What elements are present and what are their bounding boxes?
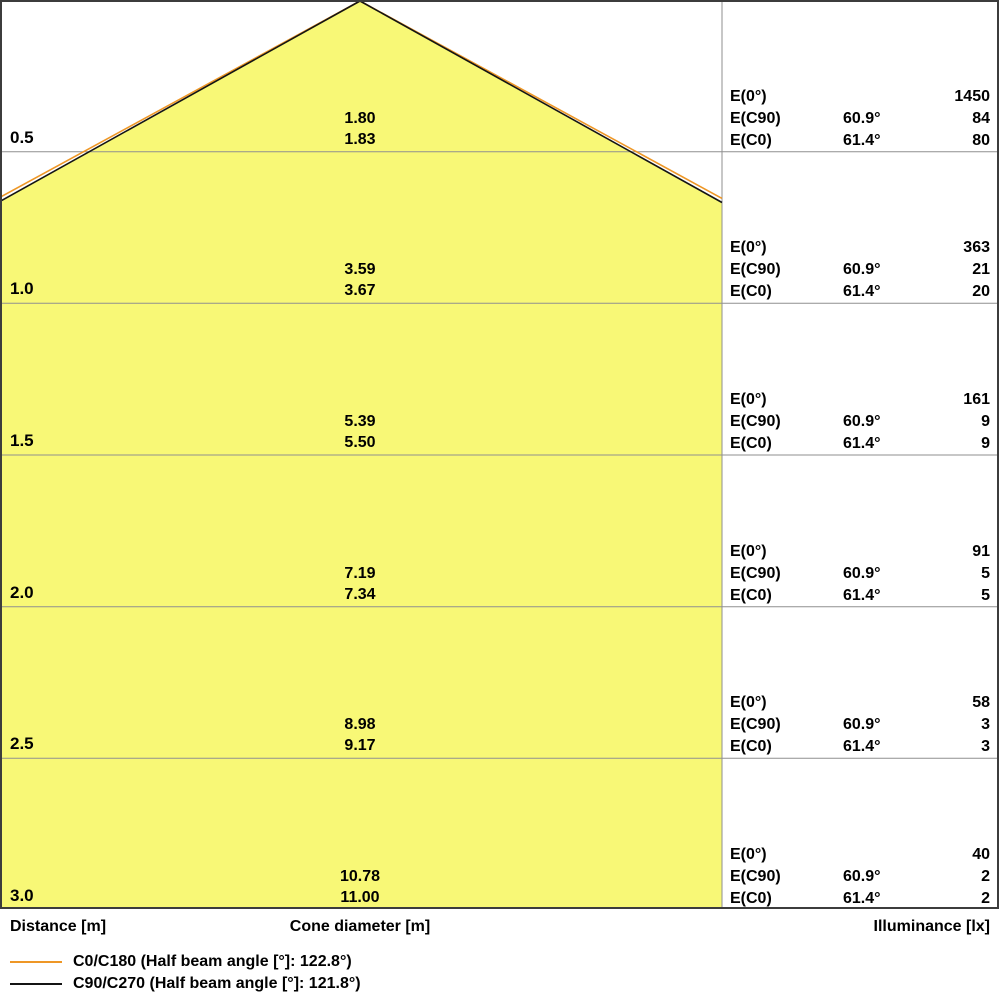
ec90-label: E(C90) bbox=[730, 411, 843, 433]
ec0-angle: 61.4° bbox=[843, 888, 927, 910]
e0-value: 91 bbox=[927, 541, 990, 563]
e0-row: E(0°)91 bbox=[730, 541, 990, 563]
cone-diameter-label: 5.395.50 bbox=[260, 411, 460, 453]
ec90-angle: 60.9° bbox=[843, 108, 927, 130]
ec0-row: E(C0)61.4°9 bbox=[730, 433, 990, 455]
e0-angle bbox=[843, 692, 927, 714]
cone-diameter-c90-value: 3.59 bbox=[260, 259, 460, 280]
e0-label: E(0°) bbox=[730, 692, 843, 714]
cone-diameter-c0-value: 3.67 bbox=[260, 280, 460, 301]
cone-diameter-c0-value: 5.50 bbox=[260, 432, 460, 453]
e0-row: E(0°)363 bbox=[730, 237, 990, 259]
ec90-value: 3 bbox=[927, 714, 990, 736]
ec90-label: E(C90) bbox=[730, 108, 843, 130]
illuminance-block: E(0°)91E(C90)60.9°5E(C0)61.4°5 bbox=[730, 541, 990, 607]
cone-diameter-label: 10.7811.00 bbox=[260, 866, 460, 908]
ec0-value: 20 bbox=[927, 281, 990, 303]
light-cone-diagram: 0.51.801.83E(0°)1450E(C90)60.9°84E(C0)61… bbox=[0, 0, 1000, 1000]
ec90-label: E(C90) bbox=[730, 259, 843, 281]
cone-diameter-label: 3.593.67 bbox=[260, 259, 460, 301]
distance-label: 0.5 bbox=[10, 127, 34, 148]
e0-value: 363 bbox=[927, 237, 990, 259]
cone-diameter-c0-value: 9.17 bbox=[260, 735, 460, 756]
cone-diameter-c90-value: 7.19 bbox=[260, 563, 460, 584]
ec0-row: E(C0)61.4°20 bbox=[730, 281, 990, 303]
ec90-row: E(C90)60.9°21 bbox=[730, 259, 990, 281]
e0-row: E(0°)58 bbox=[730, 692, 990, 714]
cone-diameter-label: 7.197.34 bbox=[260, 563, 460, 605]
ec90-value: 5 bbox=[927, 563, 990, 585]
e0-label: E(0°) bbox=[730, 237, 843, 259]
illuminance-block: E(0°)1450E(C90)60.9°84E(C0)61.4°80 bbox=[730, 86, 990, 152]
ec0-angle: 61.4° bbox=[843, 130, 927, 152]
distance-label: 2.0 bbox=[10, 582, 34, 603]
ec0-row: E(C0)61.4°5 bbox=[730, 585, 990, 607]
ec90-row: E(C90)60.9°5 bbox=[730, 563, 990, 585]
cone-diameter-c0-value: 7.34 bbox=[260, 584, 460, 605]
illuminance-block: E(0°)161E(C90)60.9°9E(C0)61.4°9 bbox=[730, 389, 990, 455]
c90-c270-line-swatch-icon bbox=[10, 983, 62, 985]
e0-angle bbox=[843, 86, 927, 108]
ec90-value: 2 bbox=[927, 866, 990, 888]
distance-label: 2.5 bbox=[10, 733, 34, 754]
ec0-label: E(C0) bbox=[730, 736, 843, 758]
cone-diameter-c90-value: 1.80 bbox=[260, 108, 460, 129]
e0-label: E(0°) bbox=[730, 541, 843, 563]
ec90-angle: 60.9° bbox=[843, 866, 927, 888]
ec0-angle: 61.4° bbox=[843, 433, 927, 455]
e0-angle bbox=[843, 237, 927, 259]
ec0-label: E(C0) bbox=[730, 888, 843, 910]
legend-item-c0-c180: C0/C180 (Half beam angle [°]: 122.8°) bbox=[10, 951, 361, 973]
ec90-angle: 60.9° bbox=[843, 563, 927, 585]
e0-value: 161 bbox=[927, 389, 990, 411]
ec90-label: E(C90) bbox=[730, 866, 843, 888]
ec90-row: E(C90)60.9°84 bbox=[730, 108, 990, 130]
c0-c180-line-swatch-icon bbox=[10, 961, 62, 963]
ec90-label: E(C90) bbox=[730, 714, 843, 736]
ec0-label: E(C0) bbox=[730, 433, 843, 455]
ec90-value: 21 bbox=[927, 259, 990, 281]
legend: C0/C180 (Half beam angle [°]: 122.8°) C9… bbox=[10, 951, 361, 995]
cone-diameter-label: 8.989.17 bbox=[260, 714, 460, 756]
cone-diameter-c0-value: 11.00 bbox=[260, 887, 460, 908]
cone-diameter-c90-value: 8.98 bbox=[260, 714, 460, 735]
e0-label: E(0°) bbox=[730, 86, 843, 108]
e0-label: E(0°) bbox=[730, 844, 843, 866]
distance-label: 3.0 bbox=[10, 885, 34, 906]
ec0-value: 5 bbox=[927, 585, 990, 607]
ec90-row: E(C90)60.9°2 bbox=[730, 866, 990, 888]
e0-row: E(0°)40 bbox=[730, 844, 990, 866]
e0-row: E(0°)161 bbox=[730, 389, 990, 411]
ec90-angle: 60.9° bbox=[843, 411, 927, 433]
ec0-angle: 61.4° bbox=[843, 585, 927, 607]
legend-label-c0-c180: C0/C180 (Half beam angle [°]: 122.8°) bbox=[73, 953, 352, 971]
illuminance-block: E(0°)363E(C90)60.9°21E(C0)61.4°20 bbox=[730, 237, 990, 303]
ec90-angle: 60.9° bbox=[843, 714, 927, 736]
ec0-value: 3 bbox=[927, 736, 990, 758]
distance-axis-label: Distance [m] bbox=[10, 916, 106, 938]
illuminance-block: E(0°)40E(C90)60.9°2E(C0)61.4°2 bbox=[730, 844, 990, 910]
distance-label: 1.0 bbox=[10, 278, 34, 299]
ec0-angle: 61.4° bbox=[843, 281, 927, 303]
cone-diameter-c90-value: 10.78 bbox=[260, 866, 460, 887]
ec90-value: 9 bbox=[927, 411, 990, 433]
e0-value: 40 bbox=[927, 844, 990, 866]
ec90-angle: 60.9° bbox=[843, 259, 927, 281]
cone-diameter-axis-label: Cone diameter [m] bbox=[210, 916, 510, 938]
cone-diameter-c0-value: 1.83 bbox=[260, 129, 460, 150]
ec90-row: E(C90)60.9°3 bbox=[730, 714, 990, 736]
ec0-row: E(C0)61.4°2 bbox=[730, 888, 990, 910]
e0-angle bbox=[843, 541, 927, 563]
legend-item-c90-c270: C90/C270 (Half beam angle [°]: 121.8°) bbox=[10, 973, 361, 995]
e0-label: E(0°) bbox=[730, 389, 843, 411]
ec0-row: E(C0)61.4°80 bbox=[730, 130, 990, 152]
ec90-label: E(C90) bbox=[730, 563, 843, 585]
ec0-value: 9 bbox=[927, 433, 990, 455]
ec90-value: 84 bbox=[927, 108, 990, 130]
e0-angle bbox=[843, 844, 927, 866]
e0-angle bbox=[843, 389, 927, 411]
distance-label: 1.5 bbox=[10, 430, 34, 451]
ec0-value: 80 bbox=[927, 130, 990, 152]
e0-value: 1450 bbox=[927, 86, 990, 108]
legend-label-c90-c270: C90/C270 (Half beam angle [°]: 121.8°) bbox=[73, 975, 361, 993]
ec0-row: E(C0)61.4°3 bbox=[730, 736, 990, 758]
illuminance-block: E(0°)58E(C90)60.9°3E(C0)61.4°3 bbox=[730, 692, 990, 758]
ec0-value: 2 bbox=[927, 888, 990, 910]
ec0-angle: 61.4° bbox=[843, 736, 927, 758]
ec0-label: E(C0) bbox=[730, 585, 843, 607]
ec0-label: E(C0) bbox=[730, 130, 843, 152]
illuminance-axis-label: Illuminance [lx] bbox=[874, 916, 990, 938]
e0-row: E(0°)1450 bbox=[730, 86, 990, 108]
ec90-row: E(C90)60.9°9 bbox=[730, 411, 990, 433]
ec0-label: E(C0) bbox=[730, 281, 843, 303]
cone-diameter-c90-value: 5.39 bbox=[260, 411, 460, 432]
cone-diameter-label: 1.801.83 bbox=[260, 108, 460, 150]
e0-value: 58 bbox=[927, 692, 990, 714]
